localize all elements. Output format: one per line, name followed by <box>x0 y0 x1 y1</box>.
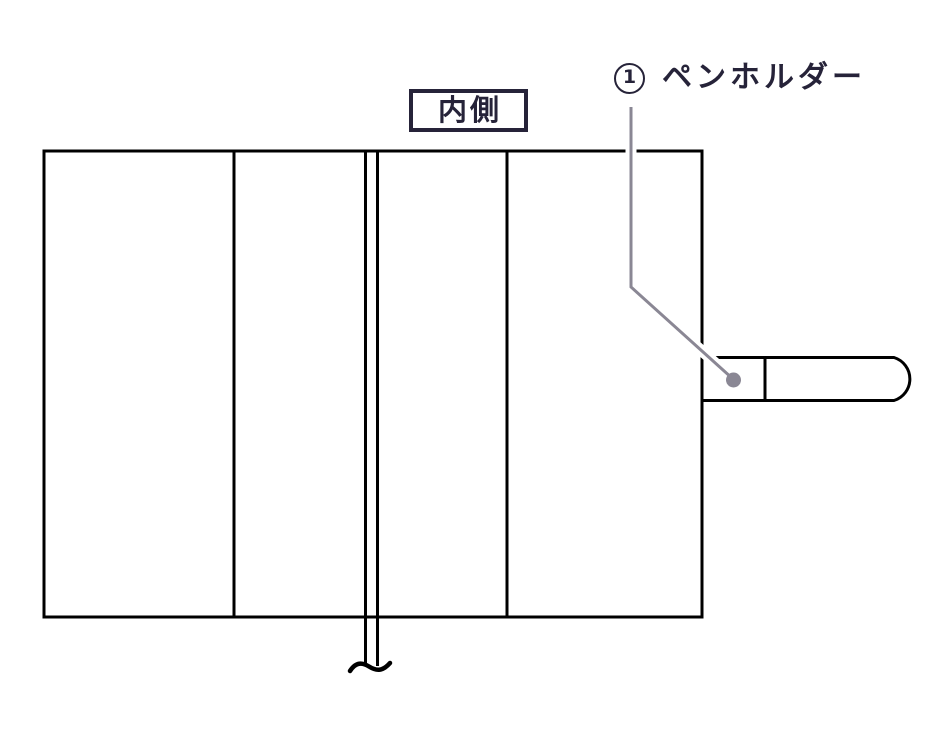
callout-number-badge: 1 <box>614 63 645 94</box>
leader-line-casing <box>631 107 733 379</box>
diagram-canvas: 内側 1 ペンホルダー <box>0 0 938 738</box>
spine-break-wave <box>350 663 390 671</box>
callout-label-text: ペンホルダー <box>662 63 866 93</box>
callout-pen-holder: 1 ペンホルダー <box>614 60 866 96</box>
callout-number-text: 1 <box>623 68 636 87</box>
region-label-text: 内側 <box>435 96 502 125</box>
cover-outline <box>44 151 702 617</box>
region-label-inner-side: 内側 <box>409 89 528 132</box>
leader-dot <box>726 373 741 388</box>
